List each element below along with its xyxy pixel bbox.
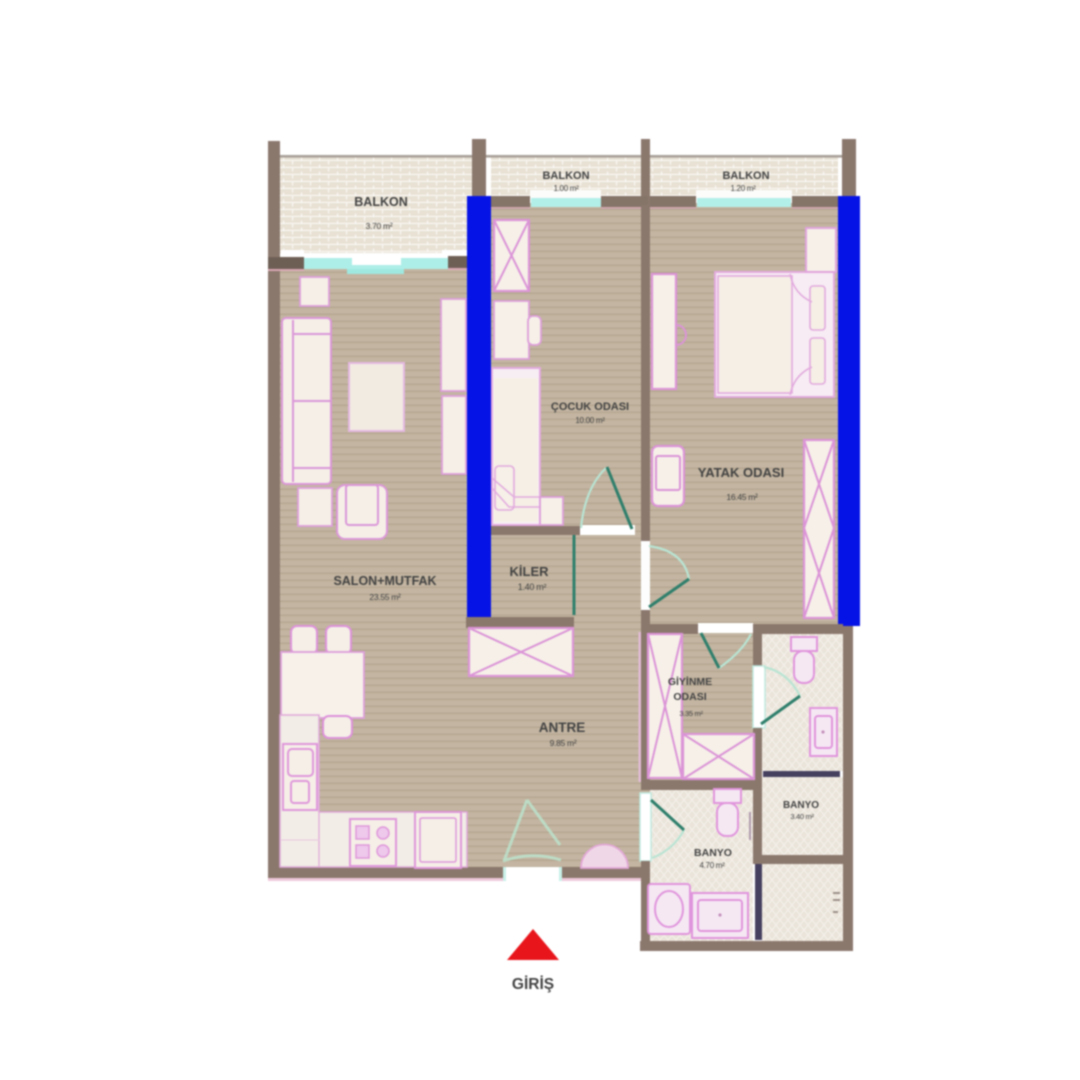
svg-text:BALKON: BALKON xyxy=(722,170,769,182)
svg-text:SALON+MUTFAK: SALON+MUTFAK xyxy=(333,574,436,588)
svg-text:9.85 m²: 9.85 m² xyxy=(550,738,577,748)
svg-text:3.70 m²: 3.70 m² xyxy=(366,221,393,231)
svg-text:YATAK ODASI: YATAK ODASI xyxy=(698,465,784,480)
svg-text:BALKON: BALKON xyxy=(354,195,407,209)
svg-text:3.35 m²: 3.35 m² xyxy=(679,709,703,718)
svg-text:GİYİNME: GİYİNME xyxy=(668,675,712,688)
svg-text:BANYO: BANYO xyxy=(783,800,819,811)
svg-text:23.55 m²: 23.55 m² xyxy=(369,592,401,602)
svg-text:16.45 m²: 16.45 m² xyxy=(726,492,758,502)
svg-text:10.00 m²: 10.00 m² xyxy=(575,416,605,425)
svg-text:1.20 m²: 1.20 m² xyxy=(730,184,756,193)
svg-text:ANTRE: ANTRE xyxy=(539,720,586,735)
svg-text:KİLER: KİLER xyxy=(510,564,550,579)
svg-text:1.00 m²: 1.00 m² xyxy=(553,184,579,193)
svg-text:3.40 m²: 3.40 m² xyxy=(790,812,814,821)
svg-text:ÇOCUK ODASI: ÇOCUK ODASI xyxy=(551,401,629,413)
svg-text:ODASI: ODASI xyxy=(673,691,706,703)
svg-text:BALKON: BALKON xyxy=(542,170,589,182)
svg-text:4.70 m²: 4.70 m² xyxy=(699,861,725,870)
svg-text:GİRİŞ: GİRİŞ xyxy=(512,976,554,993)
svg-text:1.40 m²: 1.40 m² xyxy=(518,582,547,592)
svg-text:BANYO: BANYO xyxy=(694,847,732,859)
